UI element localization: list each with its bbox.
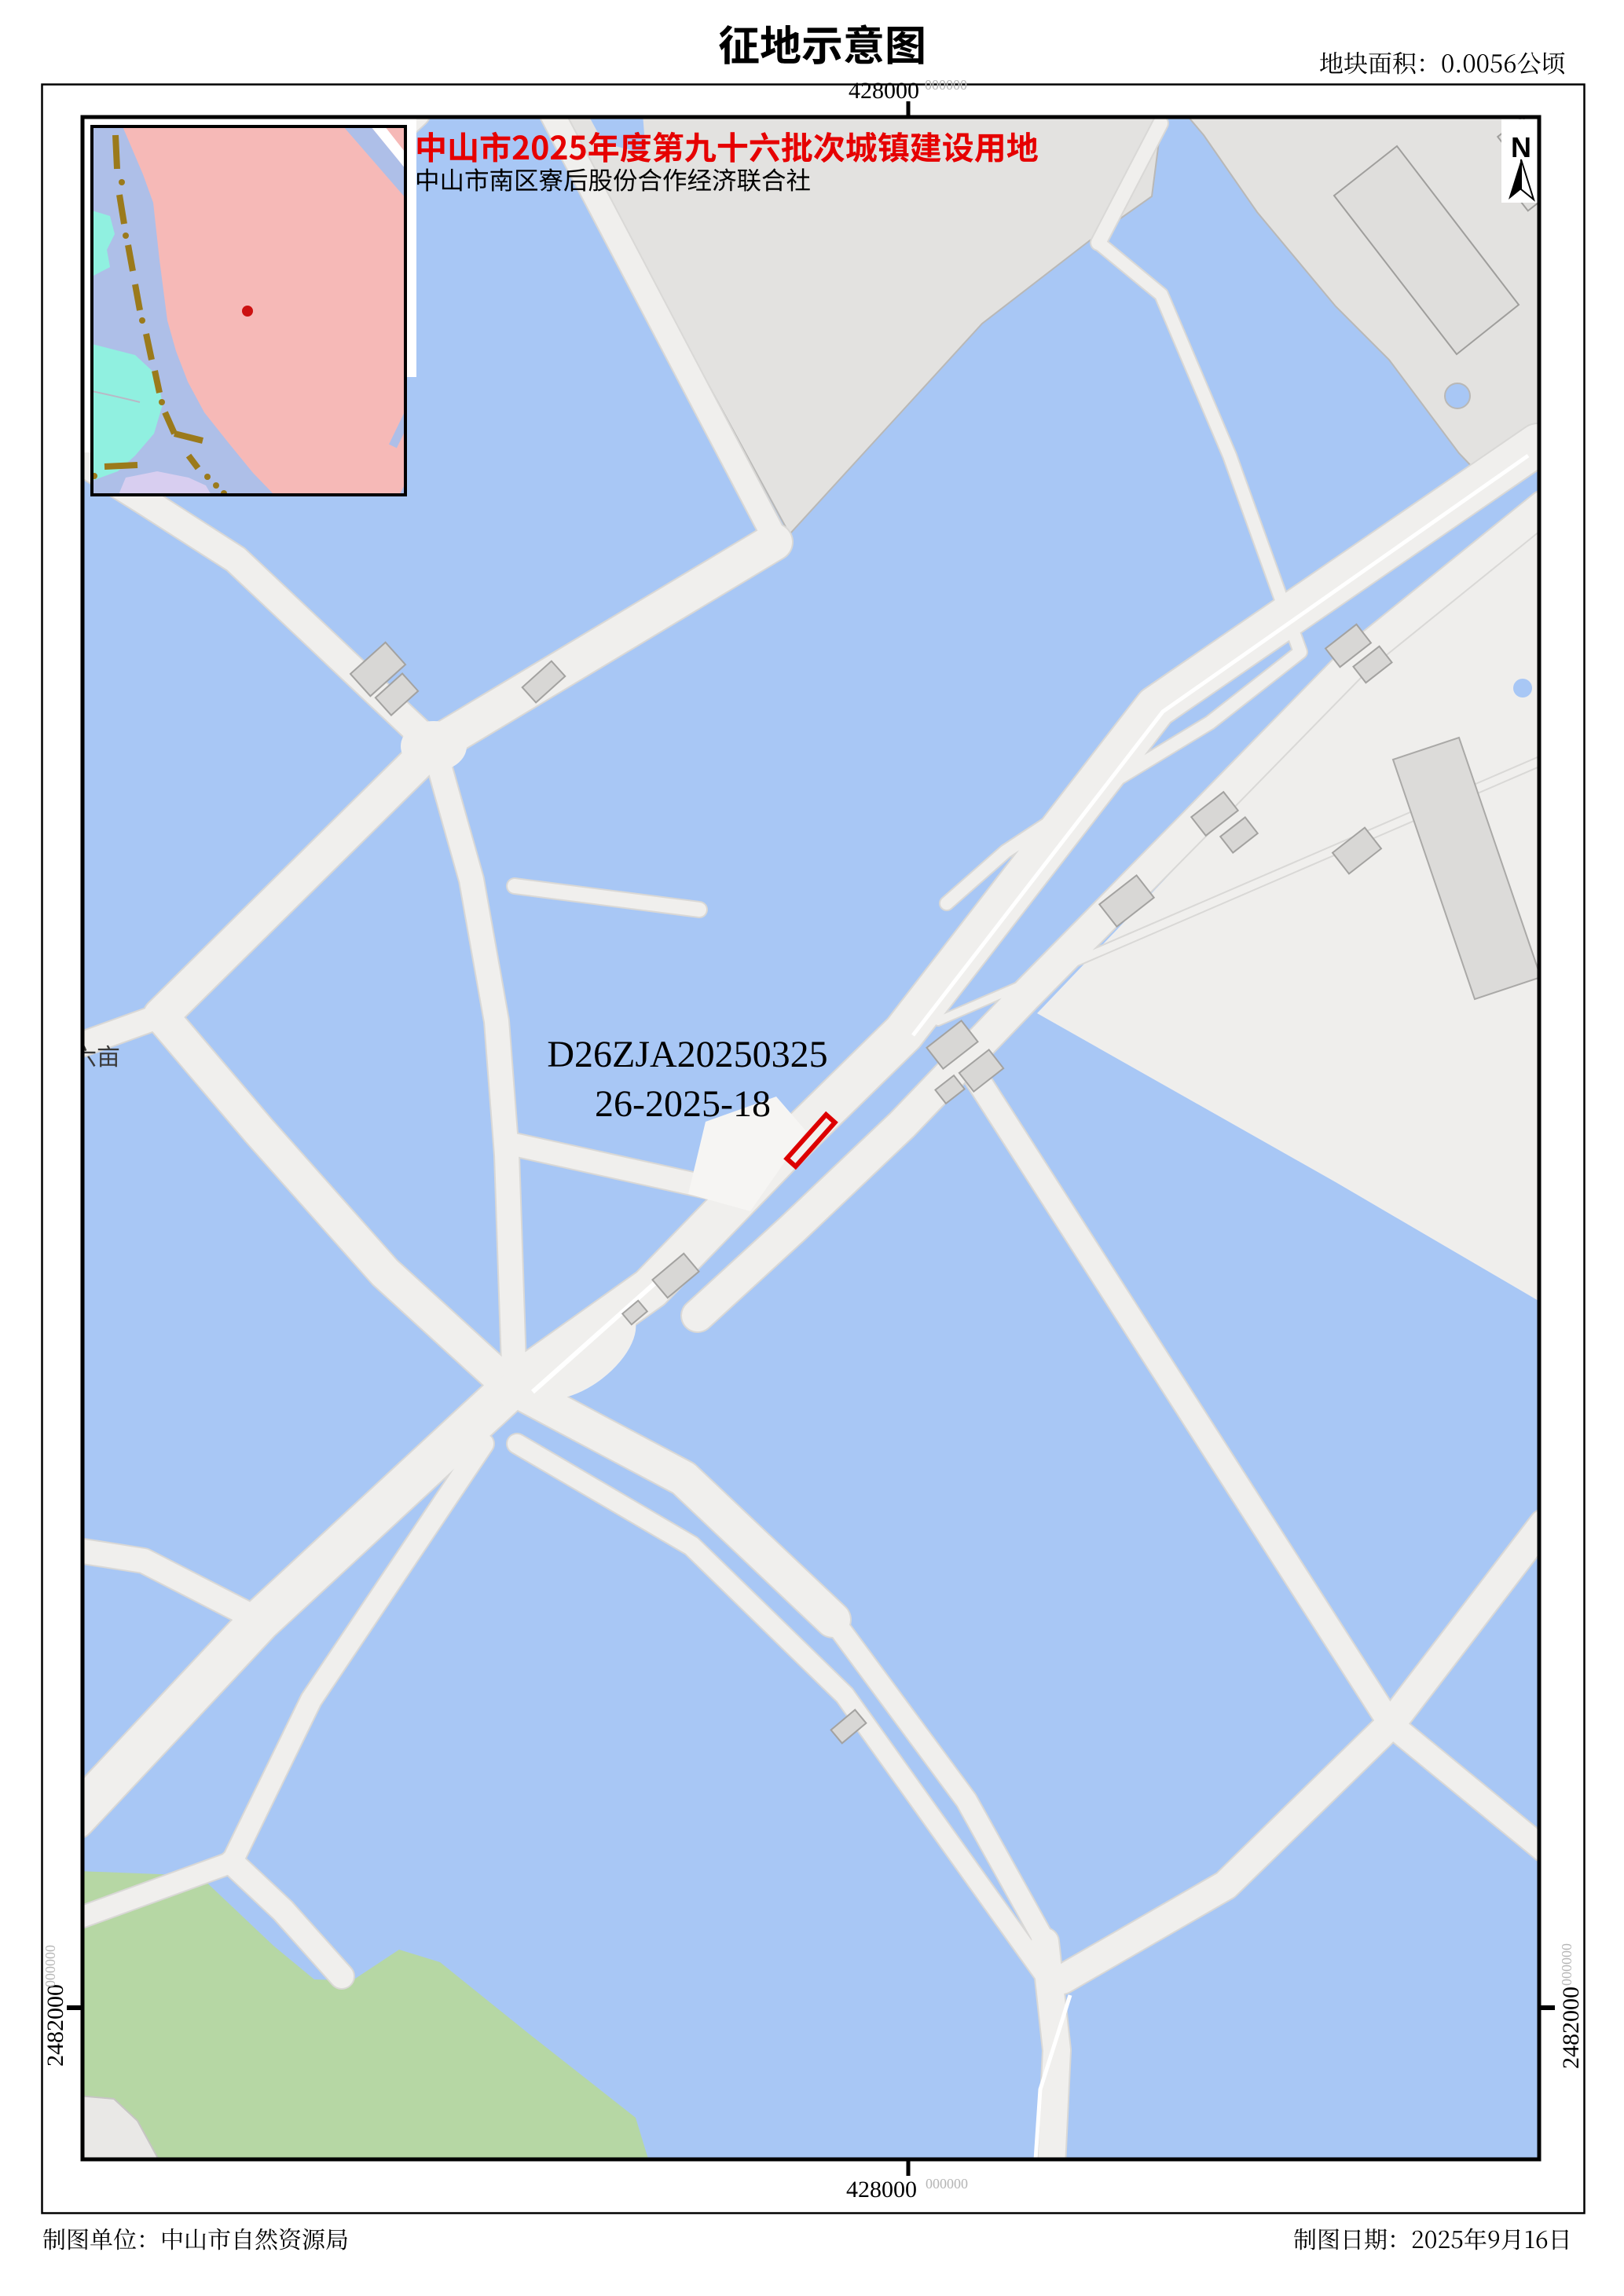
svg-text:N: N <box>1511 131 1531 163</box>
svg-text:26-2025-18: 26-2025-18 <box>595 1083 771 1125</box>
svg-text:000000: 000000 <box>926 2176 968 2192</box>
svg-text:2482000: 2482000 <box>42 1984 68 2067</box>
svg-text:428000: 428000 <box>849 78 919 104</box>
svg-text:2482000: 2482000 <box>1558 1987 1584 2069</box>
svg-text:000000: 000000 <box>925 77 967 93</box>
svg-text:D26ZJA20250325: D26ZJA20250325 <box>547 1034 827 1075</box>
svg-text:428000: 428000 <box>846 2177 917 2203</box>
svg-text:000000: 000000 <box>42 1945 58 1987</box>
svg-text:000000: 000000 <box>1559 1943 1575 1986</box>
